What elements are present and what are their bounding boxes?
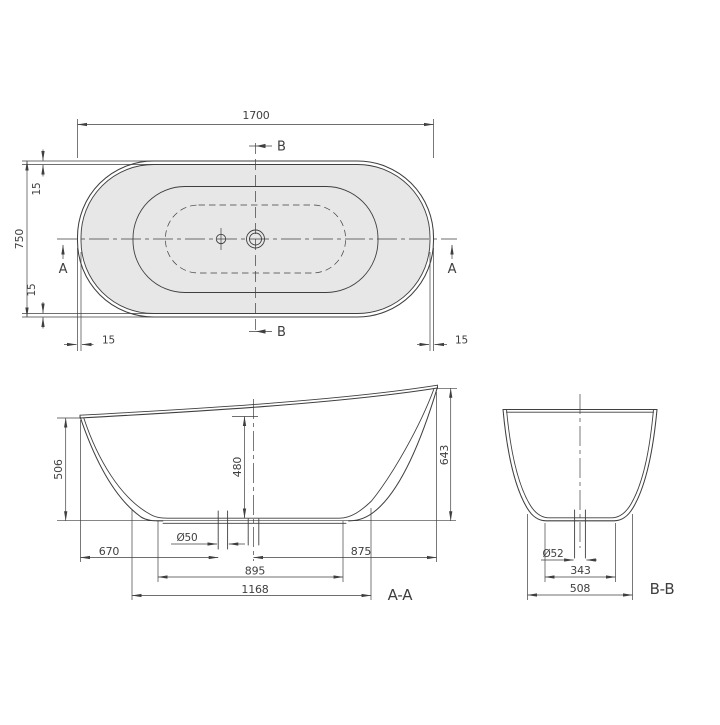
dim-drain52: Ø52	[541, 548, 597, 560]
dim-base-length: 1168	[132, 508, 371, 600]
dim-height-back: 643	[438, 388, 458, 520]
dim-center-to-back-text: 875	[351, 545, 372, 558]
dim-inner-depth-text: 480	[231, 457, 244, 478]
dim-height-back-text: 643	[438, 445, 451, 466]
section-marker-b-bottom: B	[249, 325, 286, 340]
top-view: 1700 750 15 15 15	[13, 109, 468, 351]
section-aa-label: A-A	[388, 586, 414, 604]
dim-height-front: 506	[52, 418, 81, 521]
section-aa: 506 480 643 Ø50 670 875	[52, 385, 457, 604]
section-bb: Ø52 343 508 B-B	[503, 394, 674, 600]
section-marker-b-top: B	[249, 140, 286, 155]
marker-b-bottom-text: B	[277, 325, 286, 340]
dim-center-to-back: 875	[254, 392, 437, 562]
bathtub-technical-drawing: 1700 750 15 15 15	[0, 0, 720, 720]
dim-drain50: Ø50	[171, 532, 245, 544]
dim-floor-length: 895	[158, 521, 343, 582]
dim-rim-bottom-text: 15	[26, 284, 38, 297]
marker-b-top-text: B	[277, 140, 286, 155]
dim-base-width-text: 508	[570, 582, 591, 595]
dim-rim-top: 15	[31, 150, 43, 196]
dim-floor-length-text: 895	[245, 565, 266, 578]
section-marker-a-right: A	[448, 245, 457, 277]
marker-a-right-text: A	[448, 262, 457, 277]
section-bb-label: B-B	[650, 580, 675, 598]
dim-drain52-text: Ø52	[542, 548, 563, 560]
b-bottom-arrow-icon	[256, 329, 266, 333]
dim-base-length-text: 1168	[241, 583, 268, 596]
aa-inner-surface	[84, 390, 434, 519]
dim-width-text: 750	[13, 229, 26, 250]
dim-front-to-drain-text: 670	[99, 545, 120, 558]
dim-rim-top-text: 15	[31, 183, 43, 196]
dim-front-to-drain: 670	[81, 420, 219, 562]
dim-rim-bottom: 15	[26, 284, 43, 329]
aa-rim-inner	[80, 385, 438, 415]
b-top-arrow-icon	[256, 144, 266, 148]
dim-rim-left-text: 15	[102, 335, 115, 347]
dim-height-front-text: 506	[52, 459, 65, 480]
dim-floor-width-text: 343	[570, 564, 591, 577]
marker-a-left-text: A	[59, 262, 68, 277]
aa-back-wall-outer	[349, 387, 438, 521]
aa-front-wall-outer	[80, 417, 163, 521]
section-marker-a-left: A	[59, 245, 68, 277]
drawing-page: 1700 750 15 15 15	[0, 0, 720, 720]
dim-length-text: 1700	[242, 109, 269, 122]
dim-inner-depth: 480	[231, 417, 258, 519]
dim-rim-right-text: 15	[455, 335, 468, 347]
dim-drain50-text: Ø50	[176, 532, 197, 544]
